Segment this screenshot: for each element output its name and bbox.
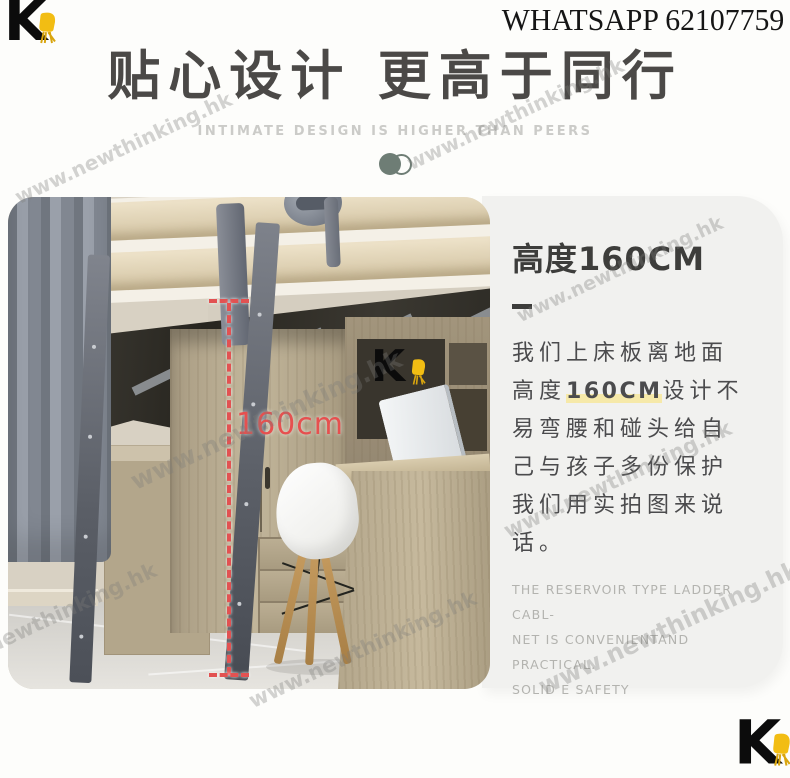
footer-brand-logo: K [734, 712, 790, 775]
measurement-cap-bottom [209, 673, 249, 677]
toggle-filled-circle [379, 153, 401, 175]
rail-bracket [324, 197, 341, 267]
footer-brand-chair-icon [764, 731, 790, 769]
measurement-line [227, 303, 231, 675]
shelf-cubby [449, 343, 487, 385]
para-highlight: 160CM [566, 379, 662, 404]
whatsapp-contact: WHATSAPP 62107759 [502, 2, 784, 38]
chair-leg [274, 554, 307, 665]
card-paragraph: 我们上床板离地面高度160CM设计不易弯腰和碰头给自己与孩子多份保护我们用实拍图… [512, 335, 752, 563]
post-screws [92, 345, 96, 349]
page-title: 贴心设计 更高于同行 [0, 34, 790, 110]
photo-brand-chair-icon [405, 357, 435, 387]
post-screws [257, 313, 261, 317]
bed-guardrail [78, 197, 490, 320]
wardrobe-handle [265, 467, 270, 489]
